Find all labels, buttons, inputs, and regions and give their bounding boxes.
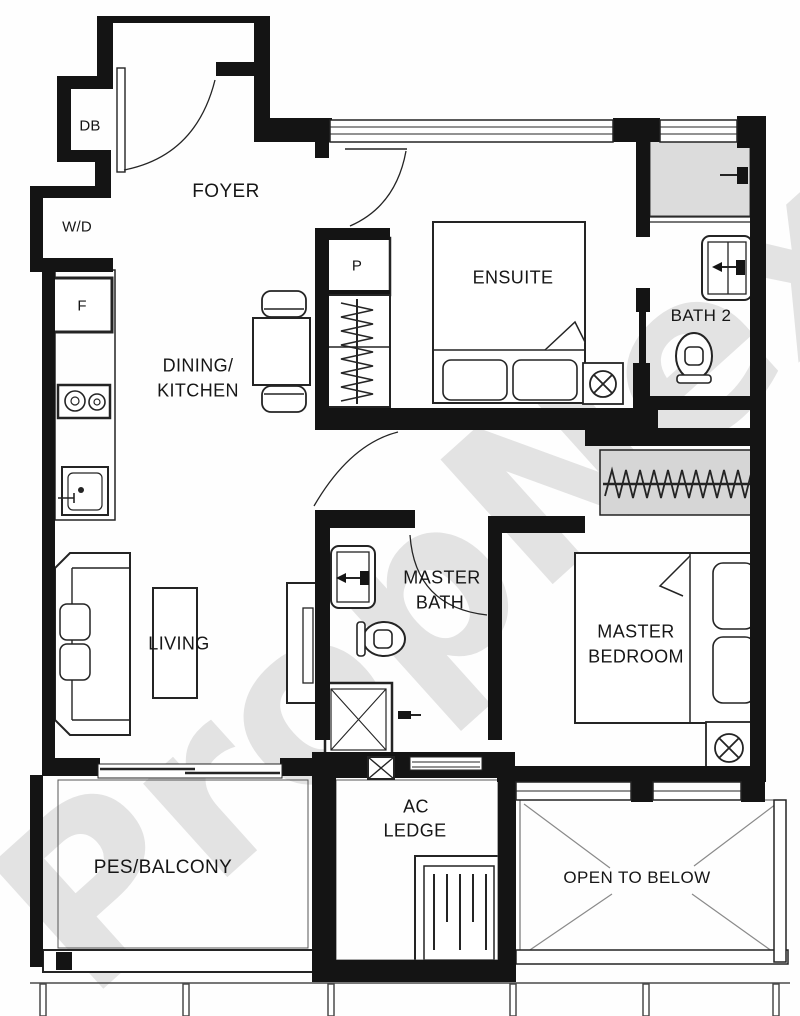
bath2-window <box>660 120 737 142</box>
room-label-master-bedroom-line2: BEDROOM <box>588 647 684 668</box>
open-below-window-left <box>516 782 631 800</box>
room-label-ac-ledge-line1: AC <box>403 797 429 818</box>
room-label-pes-balcony: PES/BALCONY <box>94 857 233 879</box>
floor-plan: PropNex <box>0 0 800 1016</box>
bath2-shower-floor <box>650 140 750 216</box>
room-label-dining-line1: DINING/ <box>163 356 234 377</box>
ac-condenser-icon <box>415 856 503 968</box>
room-label-master-bath-line1: MASTER <box>403 568 480 589</box>
hob-icon <box>58 385 110 418</box>
open-below-right-line <box>774 800 786 962</box>
ensuite-door <box>345 149 407 226</box>
ensuite-bed <box>433 222 585 403</box>
master-bath-sink <box>331 546 375 608</box>
balcony-sliding-door <box>98 764 282 778</box>
room-label-dining-line2: KITCHEN <box>157 381 239 402</box>
room-label-bath2: BATH 2 <box>671 306 732 326</box>
master-bath-window <box>410 757 482 770</box>
fixture-label-wd: W/D <box>62 219 92 236</box>
sofa <box>55 553 130 735</box>
room-label-master-bedroom-line1: MASTER <box>597 622 674 643</box>
open-below-parapet <box>516 950 788 964</box>
room-label-open-to-below: OPEN TO BELOW <box>563 868 710 888</box>
tv-console <box>287 583 316 703</box>
master-wardrobe-area <box>600 450 762 515</box>
balcony-corner-block <box>56 952 72 970</box>
balcony-parapet <box>43 950 320 972</box>
bath2-pocket-door <box>639 300 646 386</box>
dining-table <box>253 291 310 412</box>
room-label-ac-ledge-line2: LEDGE <box>383 821 446 842</box>
open-below-window-right <box>653 782 741 800</box>
wall-junction-box <box>368 757 394 779</box>
fixture-label-db: DB <box>79 118 100 135</box>
ensuite-window <box>330 120 613 142</box>
bath2-toilet-icon <box>676 333 712 383</box>
master-bath-toilet-icon <box>357 622 405 656</box>
bath2-vanity <box>702 236 752 300</box>
entry-door <box>117 68 215 172</box>
room-label-living: LIVING <box>148 634 209 655</box>
room-label-foyer: FOYER <box>192 181 259 203</box>
fixture-label-f: F <box>77 298 86 315</box>
room-label-master-bath-line2: BATH <box>416 593 464 614</box>
ensuite-fan-coil-icon <box>583 363 623 404</box>
room-label-ensuite: ENSUITE <box>473 268 554 289</box>
kitchen-sink-icon <box>58 467 108 515</box>
fixture-label-p: P <box>352 258 362 275</box>
